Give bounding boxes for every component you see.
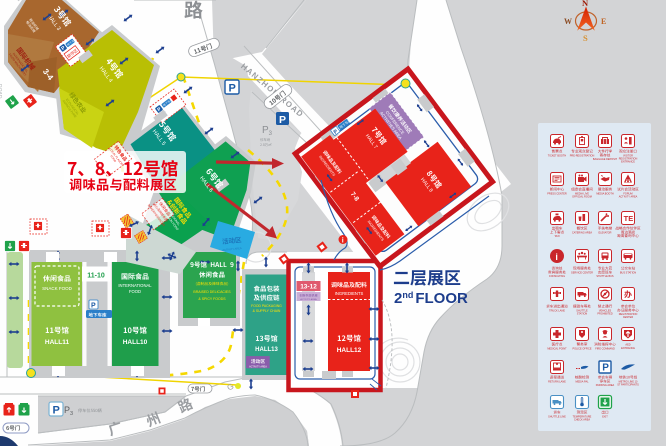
svg-text:ENTRANCE: ENTRANCE: [621, 347, 635, 350]
svg-text:EXIT: EXIT: [602, 416, 608, 419]
svg-text:& SUPPLY CHAIN: & SUPPLY CHAIN: [253, 309, 281, 313]
svg-text:PARKING AREA: PARKING AREA: [596, 384, 615, 387]
svg-text:TAXI: TAXI: [554, 235, 560, 238]
svg-text:TICKET BOOTH: TICKET BOOTH: [548, 155, 567, 158]
svg-text:HALL13: HALL13: [255, 347, 278, 353]
svg-text:BRAISED DELICACIES: BRAISED DELICACIES: [193, 290, 231, 294]
svg-text:P: P: [279, 114, 286, 126]
svg-text:S: S: [583, 33, 588, 43]
svg-text:P: P: [53, 405, 60, 417]
svg-text:OFFICIAL ROOM: OFFICIAL ROOM: [572, 195, 592, 198]
svg-text:HALL10: HALL10: [123, 339, 148, 346]
svg-text:P: P: [91, 303, 96, 310]
svg-text:11-10: 11-10: [87, 273, 105, 280]
svg-text:ACTIVITY AREA: ACTIVITY AREA: [300, 298, 317, 301]
svg-text:HALL11: HALL11: [45, 339, 70, 346]
svg-text:CATERING AREA: CATERING AREA: [572, 232, 592, 235]
svg-text:N: N: [582, 0, 589, 8]
svg-text:TRUCK LANE: TRUCK LANE: [549, 310, 565, 313]
svg-text:SNACK FOOD: SNACK FOOD: [42, 286, 73, 291]
svg-text:SHUTTLE LINE: SHUTTLE LINE: [548, 416, 566, 419]
svg-text:CENTER: CENTER: [623, 316, 633, 319]
svg-text:ACTIVITY AREA: ACTIVITY AREA: [249, 366, 267, 369]
svg-text:FOOD: FOOD: [129, 289, 141, 294]
svg-text:MEDIA PAL: MEDIA PAL: [575, 381, 589, 384]
svg-text:CHECK AREA: CHECK AREA: [574, 418, 590, 421]
svg-text:CONSULTING: CONSULTING: [549, 275, 565, 278]
svg-text:BUS STATION: BUS STATION: [620, 272, 636, 275]
svg-text:W: W: [564, 17, 572, 26]
svg-text:E: E: [601, 17, 606, 26]
svg-text:FOOD PACKAGING: FOOD PACKAGING: [251, 304, 282, 308]
svg-text:POLICE OFFICE: POLICE OFFICE: [572, 348, 591, 351]
svg-text:MEDIA BOOTH: MEDIA BOOTH: [596, 193, 614, 196]
svg-text:ACTIVITY AREA: ACTIVITY AREA: [619, 195, 638, 198]
svg-text:HALL12: HALL12: [337, 347, 362, 354]
svg-text:i: i: [555, 252, 558, 262]
svg-text:P: P: [229, 83, 236, 95]
svg-text:MEDICAL POINT: MEDICAL POINT: [547, 348, 567, 351]
svg-text:BAGGAGE DEPOSIT: BAGGAGE DEPOSIT: [593, 158, 618, 161]
svg-text:ST PARTICIPANTS: ST PARTICIPANTS: [617, 383, 639, 386]
svg-text:SHUTTLE BUS: SHUTTLE BUS: [596, 275, 614, 278]
svg-text:FIRE COMMAND: FIRE COMMAND: [595, 348, 615, 351]
svg-text:i: i: [342, 238, 344, 245]
svg-text:SERVICE CENTER: SERVICE CENTER: [571, 272, 593, 275]
svg-text:PRE-REGISTRATION: PRE-REGISTRATION: [570, 155, 595, 158]
svg-text:RETURN LANE: RETURN LANE: [548, 381, 566, 384]
svg-text:ROAD: ROAD: [0, 84, 2, 99]
svg-text:PROHIBITED: PROHIBITED: [597, 312, 612, 315]
svg-text:ENTRANCE: ENTRANCE: [621, 160, 635, 163]
svg-text:STATION: STATION: [577, 312, 588, 315]
svg-text:PRESS CENTER: PRESS CENTER: [547, 193, 567, 196]
svg-text:ELEVATOR: ELEVATOR: [599, 232, 612, 235]
svg-text:INGREDIENTS: INGREDIENTS: [335, 291, 364, 296]
svg-text:& SPICY FOODS: & SPICY FOODS: [198, 297, 226, 301]
svg-text:13-12: 13-12: [300, 284, 317, 291]
svg-text:INTERNATIONAL: INTERNATIONAL: [118, 283, 152, 288]
